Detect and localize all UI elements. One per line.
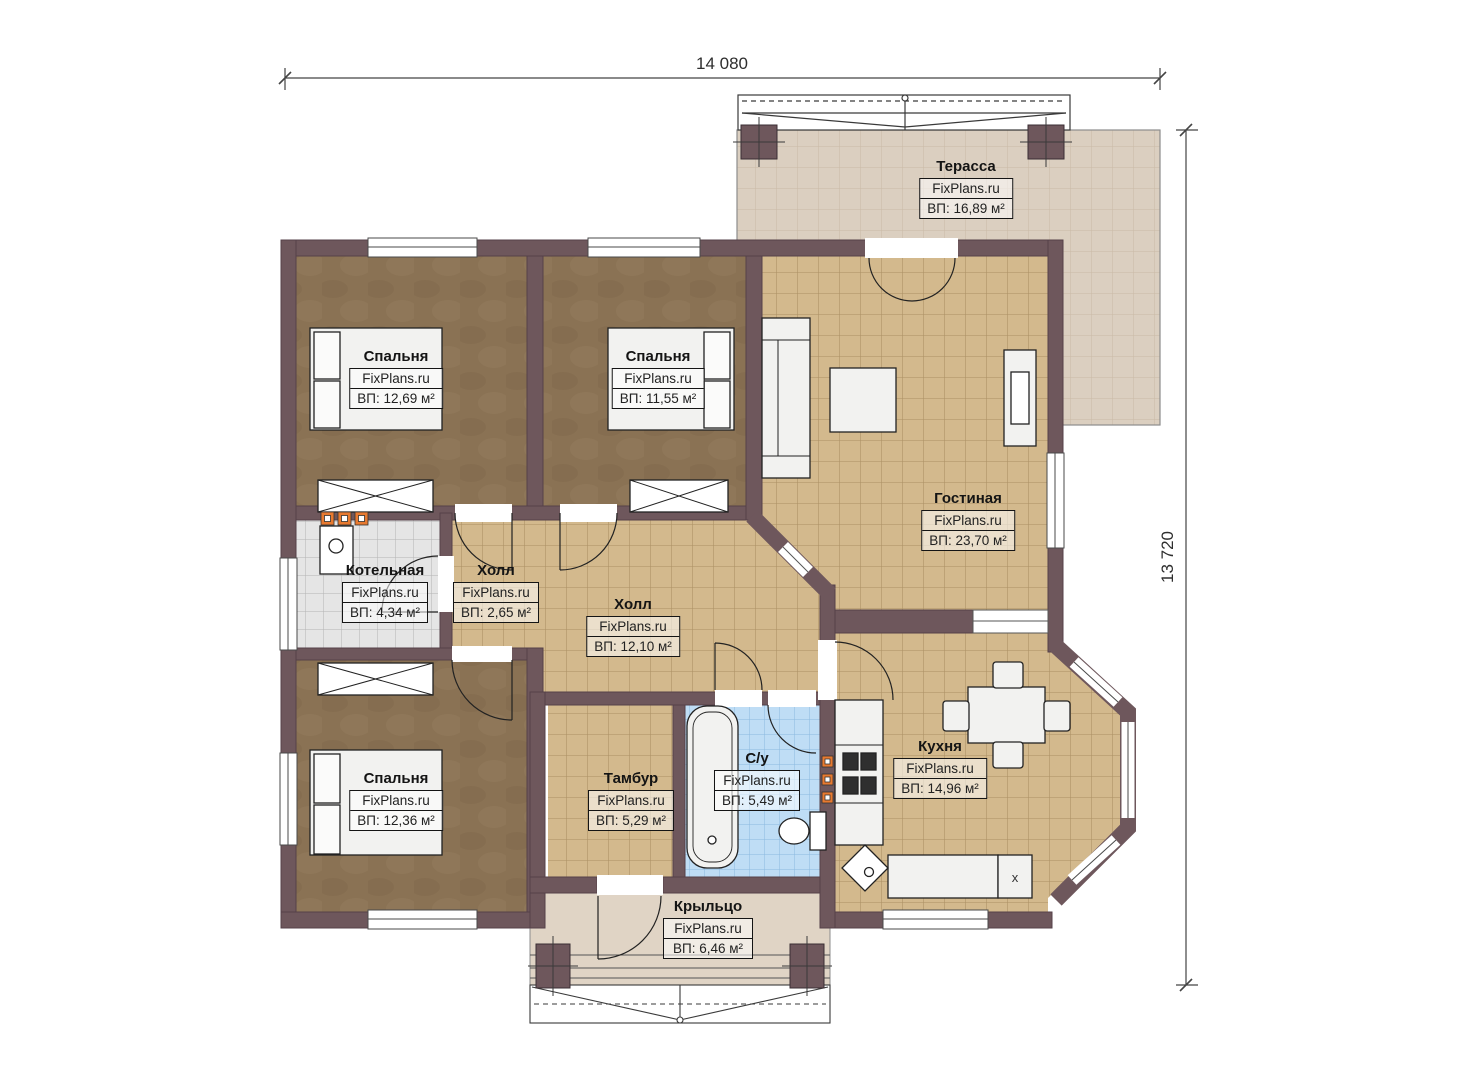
porch-truss: [530, 985, 830, 1023]
room-label-hall: Холл FixPlans.ru ВП: 12,10 м²: [586, 596, 680, 657]
room-name: Тамбур: [588, 770, 674, 787]
kitchen-counter-left: [835, 700, 883, 845]
watermark: FixPlans.ru: [894, 759, 986, 779]
room-area: ВП: 6,46 м²: [664, 939, 752, 958]
room-name: Спальня: [349, 770, 443, 787]
coffee-table: [830, 368, 896, 432]
chair: [1044, 701, 1070, 731]
room-area: ВП: 11,55 м²: [613, 389, 704, 408]
floor-plan-page: x 14 080 13 720 Терасса FixPlans.ru ВП: …: [0, 0, 1473, 1080]
wall-right-living: [1048, 240, 1063, 652]
wall-living-bottom: [835, 610, 973, 633]
room-area: ВП: 12,36 м²: [350, 811, 442, 830]
toilet-tank: [810, 812, 826, 850]
room-name: Спальня: [612, 348, 705, 365]
pillow: [314, 381, 340, 428]
watermark: FixPlans.ru: [587, 617, 679, 637]
room-area: ВП: 4,34 м²: [343, 603, 427, 622]
kitchen-counter-mark: x: [1012, 870, 1019, 885]
room-name: Терасса: [919, 158, 1013, 175]
pillow: [314, 332, 340, 379]
watermark: FixPlans.ru: [350, 791, 442, 811]
wall-bedroom-living: [746, 256, 762, 520]
room-area: ВП: 14,96 м²: [894, 779, 986, 798]
bathtub-drain: [708, 836, 716, 844]
room-label-bedroom-top-middle: Спальня FixPlans.ru ВП: 11,55 м²: [612, 348, 705, 409]
watermark: FixPlans.ru: [350, 369, 442, 389]
wall-vestibule-bath: [673, 705, 685, 880]
pillow: [314, 754, 340, 803]
room-label-porch: Крыльцо FixPlans.ru ВП: 6,46 м²: [663, 898, 753, 959]
room-label-boiler-room: Котельная FixPlans.ru ВП: 4,34 м²: [342, 562, 428, 623]
room-area: ВП: 23,70 м²: [922, 531, 1014, 550]
watermark: FixPlans.ru: [920, 179, 1012, 199]
wall-porch-top-left: [530, 877, 597, 893]
watermark: FixPlans.ru: [922, 511, 1014, 531]
room-name: С/у: [714, 750, 800, 767]
wall-porch-top-right: [663, 877, 820, 893]
dining-table: [968, 687, 1045, 743]
room-name: Котельная: [342, 562, 428, 579]
room-label-bedroom-bottom-left: Спальня FixPlans.ru ВП: 12,36 м²: [349, 770, 443, 831]
pillow: [704, 332, 730, 379]
room-name: Гостиная: [921, 490, 1015, 507]
dimension-width-label: 14 080: [696, 54, 748, 74]
room-area: ВП: 16,89 м²: [920, 199, 1012, 218]
room-label-hall-small: Холл FixPlans.ru ВП: 2,65 м²: [453, 562, 539, 623]
toilet-bowl: [779, 818, 809, 844]
room-area: ВП: 12,69 м²: [350, 389, 442, 408]
boiler-dial: [329, 539, 343, 553]
room-name: Крыльцо: [663, 898, 753, 915]
watermark: FixPlans.ru: [715, 771, 799, 791]
wall-bedrooms-divider: [527, 256, 543, 506]
room-area: ВП: 12,10 м²: [587, 637, 679, 656]
room-area: ВП: 5,49 м²: [715, 791, 799, 810]
room-label-terrace: Терасса FixPlans.ru ВП: 16,89 м²: [919, 158, 1013, 219]
room-name: Спальня: [349, 348, 443, 365]
dimension-height-label: 13 720: [1158, 531, 1178, 583]
chair: [993, 742, 1023, 768]
watermark: FixPlans.ru: [343, 583, 427, 603]
room-label-living-room: Гостиная FixPlans.ru ВП: 23,70 м²: [921, 490, 1015, 551]
sink-drain: [865, 868, 874, 877]
chair: [943, 701, 969, 731]
tv-screen: [1011, 372, 1029, 424]
room-label-vestibule: Тамбур FixPlans.ru ВП: 5,29 м²: [588, 770, 674, 831]
room-area: ВП: 5,29 м²: [589, 811, 673, 830]
watermark: FixPlans.ru: [664, 919, 752, 939]
room-label-kitchen: Кухня FixPlans.ru ВП: 14,96 м²: [893, 738, 987, 799]
opening-living-kitchen: [973, 610, 1048, 633]
watermark: FixPlans.ru: [613, 369, 704, 389]
room-name: Кухня: [893, 738, 987, 755]
terrace-pergola: [738, 95, 1070, 130]
room-name: Холл: [453, 562, 539, 579]
pillow: [704, 381, 730, 428]
watermark: FixPlans.ru: [589, 791, 673, 811]
room-label-bedroom-top-left: Спальня FixPlans.ru ВП: 12,69 м²: [349, 348, 443, 409]
chair: [993, 662, 1023, 688]
kitchen-counter-bottom: [888, 855, 998, 898]
watermark: FixPlans.ru: [454, 583, 538, 603]
sofa: [762, 318, 810, 478]
room-name: Холл: [586, 596, 680, 613]
room-area: ВП: 2,65 м²: [454, 603, 538, 622]
room-label-bathroom: С/у FixPlans.ru ВП: 5,49 м²: [714, 750, 800, 811]
pillow: [314, 805, 340, 854]
